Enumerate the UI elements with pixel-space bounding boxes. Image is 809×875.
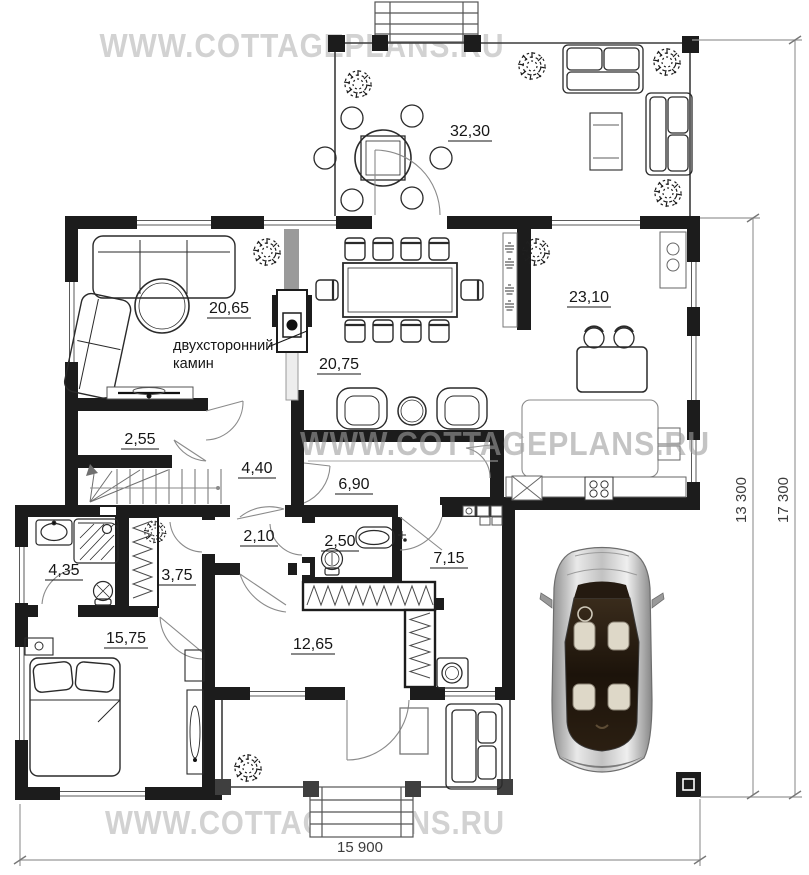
porch-steps: [310, 787, 413, 837]
room-area-kitchen: 23,10: [569, 289, 609, 306]
room-area-hall: 4,40: [241, 460, 272, 477]
staircase: [86, 464, 221, 504]
plant-icon: [249, 234, 285, 270]
room-area-wardrobe: 3,75: [161, 567, 192, 584]
door-wc: [270, 524, 302, 555]
room-area-dining: 20,75: [319, 356, 359, 373]
door-bedroom: [160, 617, 202, 659]
room-area-bedroom: 15,75: [106, 630, 146, 647]
watermark-middle: WWW.COTTAGEPLANS.RU: [300, 425, 710, 462]
plant-icon: [650, 175, 686, 211]
door-utility: [400, 517, 442, 550]
room-area-dressing: 12,65: [293, 636, 333, 653]
door-hallway-left: [304, 463, 330, 503]
bar-counter: [503, 233, 517, 327]
floor-plan-canvas: WWW.COTTAGEPLANS.RU WWW.COTTAGEPLANS.RU: [0, 0, 809, 875]
room-area-terrace: 32,30: [450, 123, 490, 140]
dining-room-furniture: [316, 233, 517, 429]
watermark-bottom: WWW.COTTAGEPLANS.RU: [105, 804, 505, 841]
plant-icon: [514, 48, 550, 84]
door-dressing: [240, 574, 286, 612]
site-corner-post: [676, 772, 701, 797]
plant-icon: [649, 44, 685, 80]
shower: [74, 519, 118, 563]
terrace-entry-steps: [375, 2, 478, 42]
lounge-armchairs: [337, 388, 487, 429]
porch-furniture: [400, 704, 502, 789]
living-room-furniture: [63, 234, 285, 400]
floor-plan-page: WWW.COTTAGEPLANS.RU WWW.COTTAGEPLANS.RU: [0, 0, 809, 875]
plant-icon: [230, 750, 266, 786]
wall-appliance-boxes: [463, 506, 502, 525]
room-area-corridor: 2,10: [243, 528, 274, 545]
terrace-furniture: [314, 44, 692, 211]
room-area-utility: 7,15: [433, 550, 464, 567]
fireplace: [272, 229, 312, 400]
plant-icon: [340, 66, 376, 102]
room-area-living: 20,65: [209, 300, 249, 317]
dimension-inner-height: 13 300: [733, 477, 750, 523]
terrace-sofa-set: [563, 45, 692, 175]
fireplace-note-line1: двухсторонний: [173, 338, 273, 354]
room-area-bathroom: 4,35: [48, 562, 79, 579]
toilet-2: [322, 549, 343, 576]
dimension-outer-height: 17 300: [775, 477, 792, 523]
room-area-hallway: 6,90: [338, 476, 369, 493]
tv-cabinet: [107, 387, 193, 399]
fireplace-note-line2: камин: [173, 356, 214, 372]
dimension-bottom-width: 15 900: [337, 839, 383, 856]
terrace-deck: [328, 2, 699, 216]
door-closet-top: [206, 401, 243, 440]
room-area-closet: 2,55: [124, 431, 155, 448]
car-top-view: [540, 548, 664, 773]
door-wardrobe: [170, 522, 202, 552]
washing-machine: [437, 658, 468, 688]
toilet-1: [94, 582, 113, 606]
room-area-wc: 2,50: [324, 533, 355, 550]
